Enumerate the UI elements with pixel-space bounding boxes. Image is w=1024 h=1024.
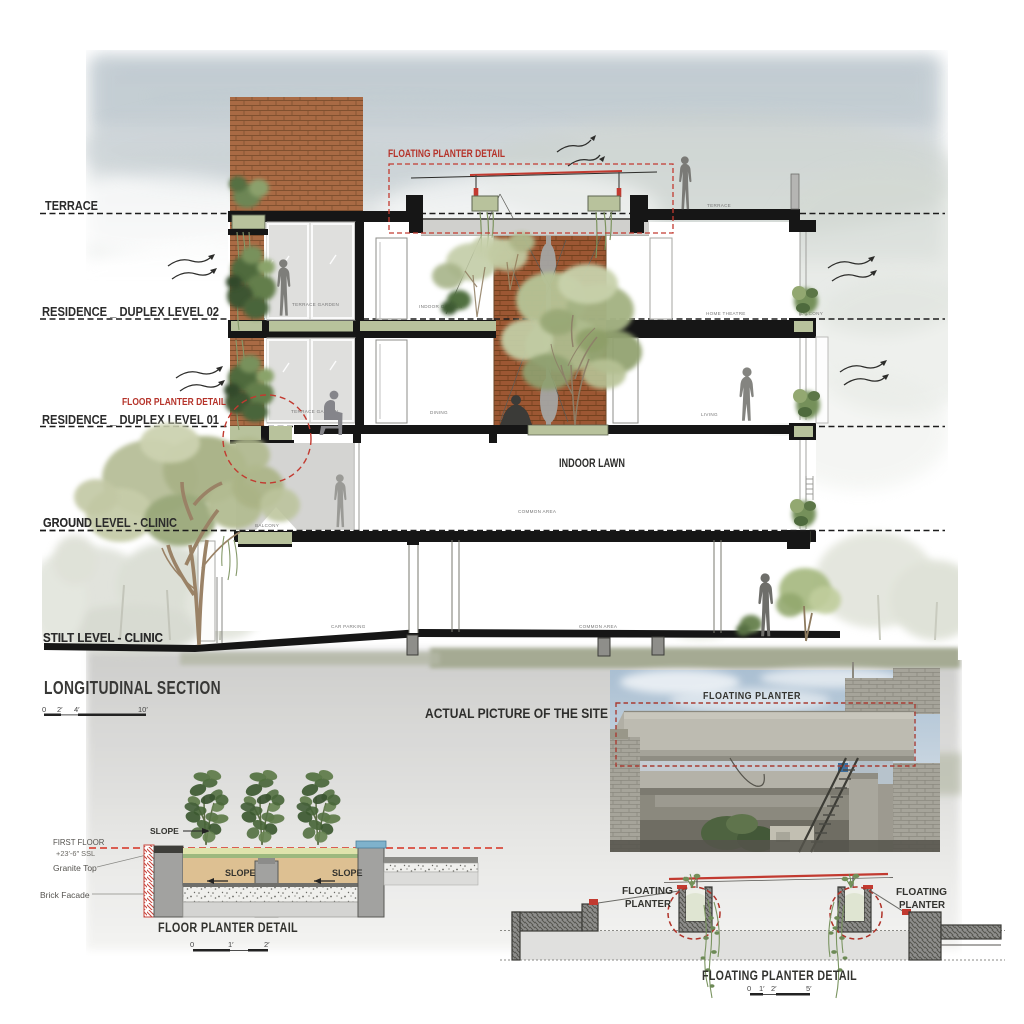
svg-text:SLOPE: SLOPE [150,826,179,836]
svg-text:COMMON AREA: COMMON AREA [518,509,557,514]
svg-text:CAR PARKING: CAR PARKING [331,624,366,629]
svg-text:2′: 2′ [771,984,777,993]
svg-text:FLOATING PLANTER: FLOATING PLANTER [703,690,801,702]
svg-text:TERRACE: TERRACE [45,198,98,213]
svg-text:Brick Facade: Brick Facade [40,890,90,900]
svg-text:COMMON AREA: COMMON AREA [579,624,618,629]
svg-text:STILT LEVEL - CLINIC: STILT LEVEL - CLINIC [43,631,163,645]
svg-text:LIVING: LIVING [701,412,718,417]
svg-text:RESIDENCE _ DUPLEX LEVEL 02: RESIDENCE _ DUPLEX LEVEL 02 [42,305,219,319]
svg-text:FLOATING: FLOATING [896,886,947,898]
svg-text:HOME THEATRE: HOME THEATRE [706,311,746,316]
svg-text:TERRACE: TERRACE [707,203,731,208]
svg-text:RESIDENCE _ DUPLEX LEVEL 01: RESIDENCE _ DUPLEX LEVEL 01 [42,413,219,427]
svg-text:LONGITUDINAL SECTION: LONGITUDINAL SECTION [44,677,221,698]
svg-text:Granite Top: Granite Top [53,863,97,873]
svg-text:+23′-6″ SSL: +23′-6″ SSL [56,849,95,858]
svg-text:ACTUAL PICTURE OF THE SITE: ACTUAL PICTURE OF THE SITE [425,706,608,721]
svg-text:PLANTER: PLANTER [899,899,945,911]
svg-text:FLOOR PLANTER DETAIL: FLOOR PLANTER DETAIL [158,920,298,935]
svg-text:4′: 4′ [74,705,80,714]
svg-text:FLOATING PLANTER DETAIL: FLOATING PLANTER DETAIL [702,968,857,983]
svg-text:FLOATING PLANTER DETAIL: FLOATING PLANTER DETAIL [388,148,505,160]
svg-text:1′: 1′ [228,940,234,949]
svg-text:SLOPE: SLOPE [332,868,363,878]
svg-text:1′: 1′ [759,984,765,993]
svg-text:FLOATING: FLOATING [622,885,673,897]
svg-text:FIRST FLOOR: FIRST FLOOR [53,838,105,847]
svg-text:FLOOR PLANTER DETAIL: FLOOR PLANTER DETAIL [122,396,226,408]
svg-text:INDOOR LAWN: INDOOR LAWN [559,458,625,470]
svg-text:5′: 5′ [806,984,812,993]
svg-text:10′: 10′ [138,705,148,714]
svg-text:0: 0 [190,940,194,949]
svg-text:GROUND LEVEL - CLINIC: GROUND LEVEL - CLINIC [43,516,177,530]
svg-text:TERRACE GARDEN: TERRACE GARDEN [292,302,339,307]
svg-text:2′: 2′ [57,705,63,714]
svg-text:DINING: DINING [430,410,448,415]
svg-text:2′: 2′ [264,940,270,949]
svg-text:0: 0 [747,984,751,993]
svg-text:SLOPE: SLOPE [225,868,256,878]
svg-text:0: 0 [42,705,46,714]
svg-text:PLANTER: PLANTER [625,898,671,910]
svg-text:BALCONY: BALCONY [255,523,279,528]
